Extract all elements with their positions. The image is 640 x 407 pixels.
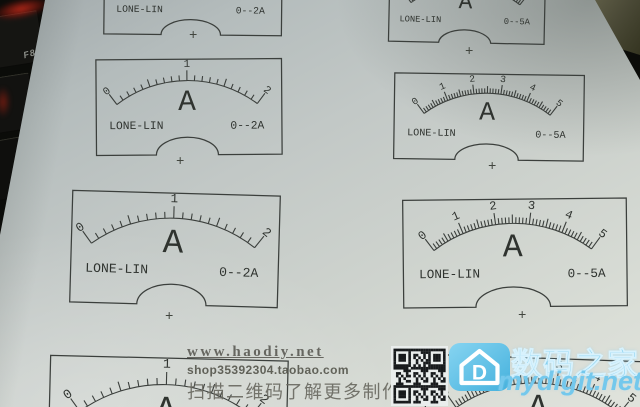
meter-range-label: 0--5A xyxy=(535,130,566,141)
ammeter-face-0-5a: 012345 A LONE-LIN 0--5A xyxy=(401,197,628,309)
logo-letter: D xyxy=(472,362,487,385)
meter-scale-number: 1 xyxy=(170,192,178,206)
meter-brand-label: LONE-LIN xyxy=(407,128,456,140)
meter-scale-number: 0 xyxy=(410,95,421,107)
meter-scale-number: 1 xyxy=(438,80,448,92)
meter-scale-number: 2 xyxy=(488,199,497,214)
meter-unit-label: A xyxy=(154,390,177,407)
meter-range-label: 0--5A xyxy=(567,266,606,281)
registration-cross: + xyxy=(518,308,526,324)
watermark-mydigit-url: mydigit.net xyxy=(498,366,640,397)
meter-brand-label: LONE-LIN xyxy=(116,4,163,15)
meter-scale-number: 2 xyxy=(259,225,274,241)
meter-unit-label: A xyxy=(458,0,473,15)
photo-scene: F8 012 A LONE-LIN 0--2A 012345 A LONE-LI… xyxy=(0,0,640,407)
meter-scale-number: 3 xyxy=(527,199,536,214)
registration-cross: + xyxy=(488,159,496,175)
meter-scale-number: 4 xyxy=(563,208,575,224)
watermark-taobao-shop: shop35392304.taobao.com xyxy=(187,363,402,377)
meter-unit-label: A xyxy=(162,225,184,264)
meter-scale-number: 1 xyxy=(184,59,191,71)
meter-range-label: 0--2A xyxy=(219,265,259,281)
meter-unit-label: A xyxy=(178,86,196,119)
meter-scale-number: 3 xyxy=(499,74,507,86)
registration-cross: + xyxy=(176,154,184,170)
ammeter-face-0-5a: 012345 A LONE-LIN 0--5A xyxy=(387,0,547,46)
paper-sheet: 012 A LONE-LIN 0--2A 012345 A LONE-LIN 0… xyxy=(0,0,640,407)
meter-scale-number: 2 xyxy=(469,73,476,85)
watermark-haodiy-url: www.haodiy.net xyxy=(187,344,402,361)
meter-range-label: 0--2A xyxy=(236,5,265,16)
watermark-qr-caption: 扫描二维码了解更多制作 xyxy=(187,378,402,404)
watermark-center: www.haodiy.net shop35392304.taobao.com 扫… xyxy=(187,344,402,404)
meter-scale-number: 2 xyxy=(261,84,273,97)
ammeter-face-0-2a: 012 A LONE-LIN 0--2A xyxy=(95,57,284,156)
meter-scale-number: 1 xyxy=(450,209,462,225)
meter-scale-number: 1 xyxy=(163,357,171,372)
meter-brand-label: LONE-LIN xyxy=(419,267,480,283)
meter-scale-number: 0 xyxy=(416,228,430,244)
ammeter-face-0-5a: 012345 A LONE-LIN 0--5A xyxy=(392,72,585,163)
meter-brand-label: LONE-LIN xyxy=(399,14,441,25)
registration-cross: + xyxy=(465,44,473,60)
registration-cross: + xyxy=(189,28,197,44)
registration-cross: + xyxy=(165,309,173,325)
meter-range-label: 0--2A xyxy=(230,120,264,132)
meter-scale-number: 5 xyxy=(595,226,609,242)
meter-scale-number: 0 xyxy=(73,220,87,236)
meter-unit-label: A xyxy=(503,229,523,266)
meter-unit-label: A xyxy=(184,0,200,5)
meter-brand-label: LONE-LIN xyxy=(85,261,148,278)
qr-code xyxy=(391,346,448,406)
meter-scale-number: 0 xyxy=(60,386,75,403)
ammeter-face-0-2a: 012 A LONE-LIN 0--2A xyxy=(68,189,281,309)
meter-range-label: 0--5A xyxy=(504,17,531,28)
meter-scale-number: 4 xyxy=(528,82,538,94)
meter-brand-label: LONE-LIN xyxy=(109,121,163,133)
meter-scale-number: 0 xyxy=(101,85,113,98)
meter-unit-label: A xyxy=(479,97,495,127)
